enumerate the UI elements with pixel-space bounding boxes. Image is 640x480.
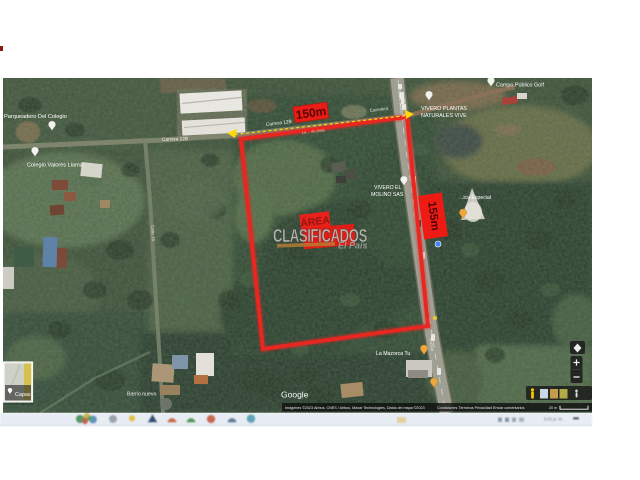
svg-text:Carrera 12B: Carrera 12B: [162, 136, 188, 143]
svg-text:6:21 p. m.: 6:21 p. m.: [544, 417, 563, 422]
svg-text:MOLINO SAS: MOLINO SAS: [371, 192, 404, 198]
svg-text:Campo Público Golf: Campo Público Golf: [496, 83, 544, 89]
svg-text:Colegio Valores Llama: Colegio Valores Llama: [27, 163, 84, 169]
svg-text:Condiciones Términos Priva: Condiciones Términos Privacidad Enviar c…: [437, 406, 525, 410]
svg-text:El País: El País: [338, 241, 368, 251]
svg-text:Google: Google: [281, 390, 309, 400]
svg-text:Parqueadero Del Colegio: Parqueadero Del Colegio: [4, 114, 67, 120]
svg-text:La Mazorca Tu: La Mazorca Tu: [376, 351, 410, 357]
svg-text:VIVERO EL: VIVERO EL: [374, 185, 402, 191]
svg-text:NATURALES VIVE: NATURALES VIVE: [421, 113, 467, 119]
svg-text:VIVERO PLANTAS: VIVERO PLANTAS: [421, 106, 467, 112]
svg-text:...ica Especial: ...ica Especial: [459, 195, 491, 201]
svg-text:Capas: Capas: [15, 392, 31, 398]
svg-text:Barrio nuevo: Barrio nuevo: [127, 392, 157, 398]
svg-text:Imágenes ©2023 Airbus, CNES /: Imágenes ©2023 Airbus, CNES / Airbus, Ma…: [285, 406, 425, 410]
svg-text:20 m: 20 m: [549, 406, 557, 410]
